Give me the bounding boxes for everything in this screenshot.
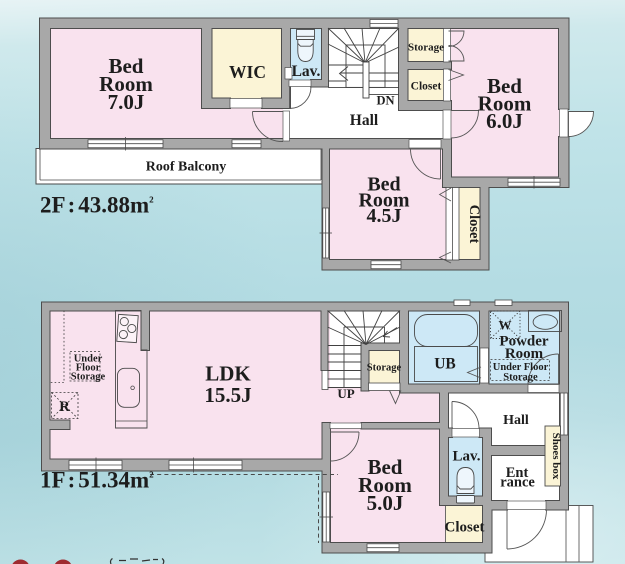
svg-text:1F:51.34m²: 1F:51.34m² bbox=[40, 468, 154, 493]
svg-text:Storage: Storage bbox=[503, 372, 538, 383]
svg-text:Room: Room bbox=[505, 346, 544, 362]
svg-text:LDK: LDK bbox=[205, 362, 251, 386]
svg-text:DN: DN bbox=[376, 94, 394, 108]
svg-text:4.5J: 4.5J bbox=[367, 205, 402, 227]
svg-text:Closet: Closet bbox=[466, 205, 482, 244]
svg-text:Lav.: Lav. bbox=[292, 63, 321, 80]
svg-text:7.0J: 7.0J bbox=[108, 90, 145, 114]
svg-text:Storage: Storage bbox=[408, 42, 444, 54]
svg-text:W: W bbox=[499, 318, 512, 333]
svg-text:Roof Balcony: Roof Balcony bbox=[146, 160, 227, 175]
svg-text:rance: rance bbox=[500, 475, 535, 491]
svg-text:Storage: Storage bbox=[71, 372, 106, 383]
svg-text:Closet: Closet bbox=[411, 81, 442, 93]
svg-text:2F:43.88m²: 2F:43.88m² bbox=[40, 193, 154, 218]
svg-text:WIC: WIC bbox=[229, 62, 266, 82]
svg-text:Shoes box: Shoes box bbox=[550, 433, 562, 480]
svg-text:R: R bbox=[59, 399, 70, 415]
svg-text:15.5J: 15.5J bbox=[204, 383, 251, 407]
svg-text:Storage: Storage bbox=[367, 363, 402, 374]
svg-text:Lav.: Lav. bbox=[453, 449, 481, 465]
svg-text:Hall: Hall bbox=[350, 112, 379, 129]
svg-text:5.0J: 5.0J bbox=[367, 491, 404, 515]
svg-text:UP: UP bbox=[337, 386, 354, 401]
svg-text:UB: UB bbox=[434, 356, 456, 373]
svg-text:6.0J: 6.0J bbox=[486, 109, 523, 133]
svg-text:Hall: Hall bbox=[503, 413, 529, 428]
svg-text:Closet: Closet bbox=[445, 520, 485, 536]
